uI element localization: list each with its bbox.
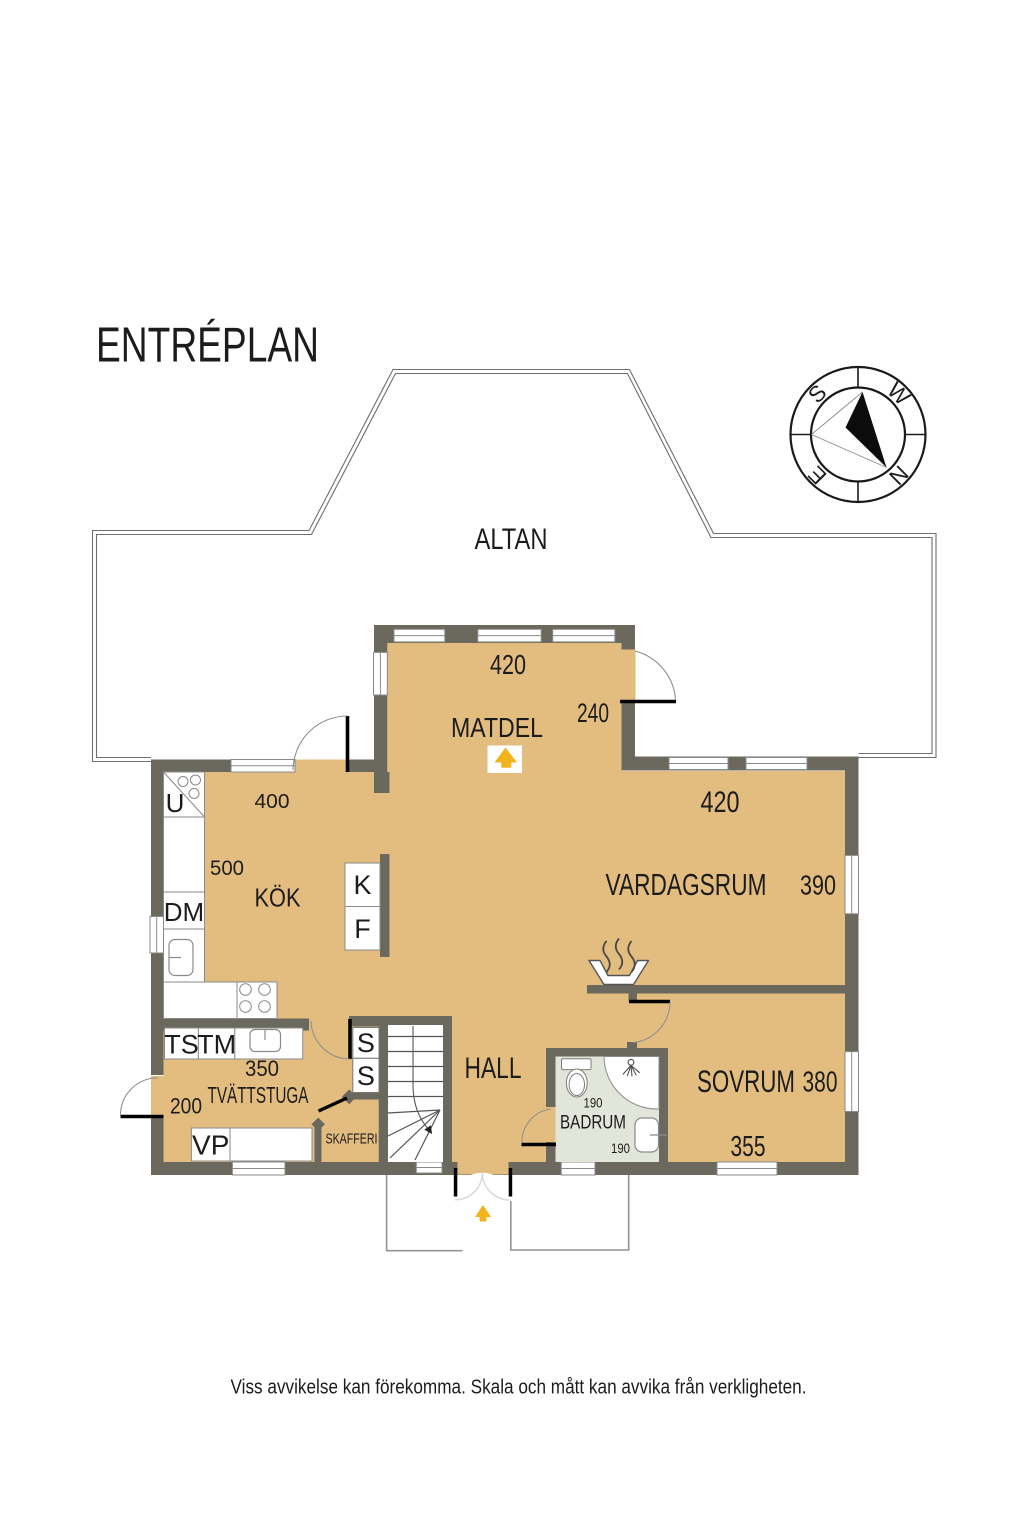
svg-text:U: U <box>166 788 185 818</box>
svg-text:VARDAGSRUM: VARDAGSRUM <box>606 867 767 902</box>
svg-text:K: K <box>353 870 371 900</box>
svg-text:390: 390 <box>800 870 836 901</box>
svg-text:F: F <box>354 914 371 944</box>
svg-text:350: 350 <box>245 1056 279 1081</box>
svg-text:S: S <box>357 1028 375 1058</box>
svg-text:190: 190 <box>584 1096 603 1111</box>
svg-text:240: 240 <box>577 698 609 728</box>
svg-text:TM: TM <box>197 1030 236 1060</box>
svg-text:Viss avvikelse kan förekomma.: Viss avvikelse kan förekomma. Skala och … <box>231 1377 807 1399</box>
svg-text:500: 500 <box>210 857 244 880</box>
svg-text:VP: VP <box>192 1130 229 1161</box>
svg-text:200: 200 <box>170 1094 202 1119</box>
svg-text:ALTAN: ALTAN <box>475 523 548 556</box>
svg-text:BADRUM: BADRUM <box>560 1113 626 1134</box>
svg-text:420: 420 <box>490 649 526 680</box>
svg-text:HALL: HALL <box>465 1052 522 1085</box>
svg-text:S: S <box>357 1061 375 1091</box>
svg-text:TVÄTTSTUGA: TVÄTTSTUGA <box>208 1082 309 1108</box>
svg-text:MATDEL: MATDEL <box>451 712 543 743</box>
svg-text:TS: TS <box>164 1030 199 1060</box>
svg-text:355: 355 <box>731 1131 766 1163</box>
svg-text:420: 420 <box>701 786 740 819</box>
svg-text:190: 190 <box>611 1141 630 1156</box>
svg-text:SOVRUM: SOVRUM <box>697 1063 795 1099</box>
svg-text:400: 400 <box>255 790 290 813</box>
svg-text:380: 380 <box>803 1067 838 1099</box>
svg-text:ENTRÉPLAN: ENTRÉPLAN <box>96 319 319 373</box>
svg-text:DM: DM <box>164 897 204 927</box>
svg-text:KÖK: KÖK <box>255 883 302 913</box>
svg-text:SKAFFERI: SKAFFERI <box>326 1132 378 1148</box>
